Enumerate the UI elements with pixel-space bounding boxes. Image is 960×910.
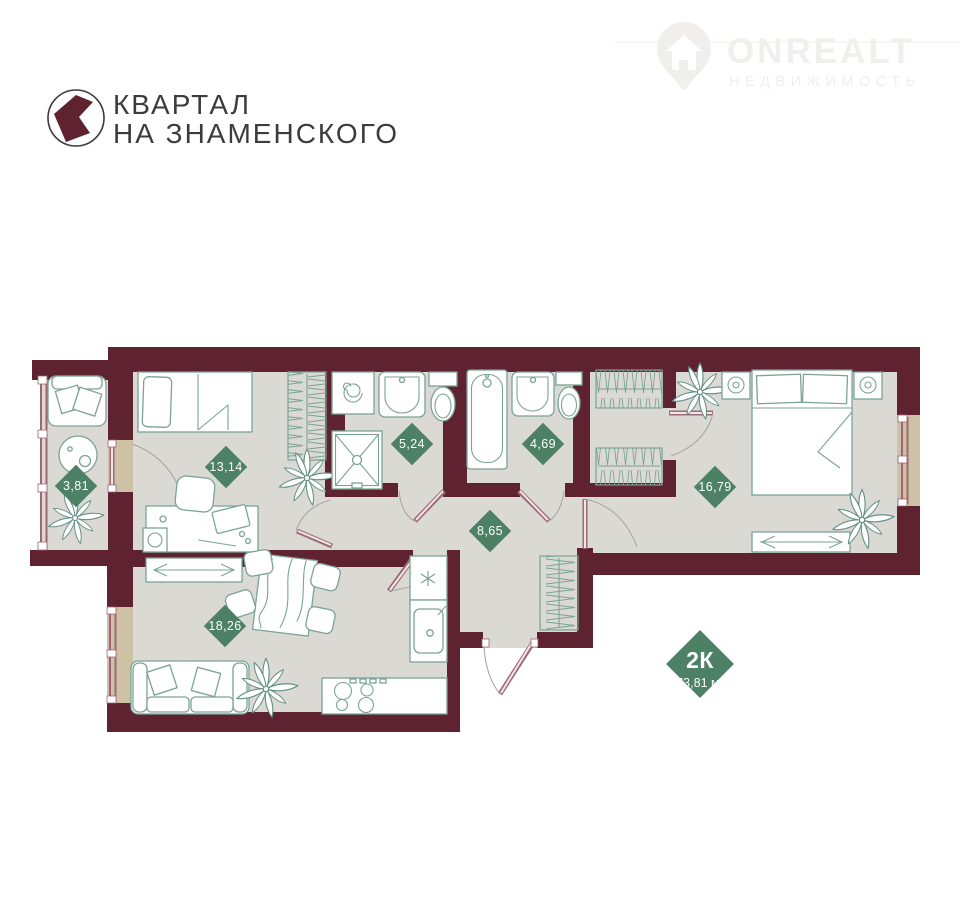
onrealt-pin-icon: [657, 22, 711, 90]
bathroom1-area: 5,24: [399, 437, 425, 451]
bedroom1-area: 13,14: [209, 460, 242, 474]
fridge: [410, 556, 447, 600]
hallway-area: 8,65: [477, 524, 503, 538]
bedroom1-wardrobe: [288, 372, 326, 460]
apartment-type: 2К: [686, 647, 714, 673]
brand-line1: КВАРТАЛ: [113, 89, 251, 120]
bedroom2-nightstand-right: [854, 372, 882, 399]
kitchen-sink: [410, 600, 447, 662]
balcony-armchair: [48, 376, 106, 426]
bathroom2-area: 4,69: [530, 437, 556, 451]
tv-bench: [146, 558, 242, 582]
bedroom2-area: 16,79: [698, 480, 731, 494]
bathroom2-sink: [512, 372, 554, 416]
bathroom1-sink: [379, 372, 425, 417]
living-kitchen-area: 18,26: [208, 619, 241, 633]
apartment-badge: 2К 73,81 м²: [666, 630, 734, 698]
bedroom2-bench: [752, 532, 850, 552]
watermark-title: ONREALT: [727, 32, 915, 71]
bathroom1-toilet: [429, 372, 457, 421]
brand-line2: НА ЗНАМЕНСКОГО: [113, 118, 399, 149]
niche-closet-bottom: [596, 448, 662, 485]
floor-plan-canvas: ONREALT НЕДВИЖИМОСТЬ КВАРТАЛ НА ЗНАМЕНСК…: [0, 0, 960, 910]
shower: [332, 431, 382, 489]
bedroom2-nightstand-left: [722, 372, 750, 399]
apartment-area: 73,81 м²: [676, 676, 724, 690]
bathroom2-toilet: [556, 372, 582, 419]
bedroom1-bed: [138, 372, 252, 432]
watermark-subtitle: НЕДВИЖИМОСТЬ: [729, 74, 921, 90]
balcony-area: 3,81: [63, 479, 89, 493]
stove-counter: [322, 678, 447, 714]
watermark: ONREALT НЕДВИЖИМОСТЬ: [615, 22, 960, 90]
brand-logo: КВАРТАЛ НА ЗНАМЕНСКОГО: [48, 89, 399, 149]
niche-closet-top: [596, 370, 662, 408]
bathtub: [467, 370, 507, 469]
floor-plan-page: ONREALT НЕДВИЖИМОСТЬ КВАРТАЛ НА ЗНАМЕНСК…: [0, 0, 960, 910]
bedroom2-bed: [752, 370, 852, 495]
washing-machine: [332, 372, 374, 414]
sofa: [131, 661, 249, 714]
hall-coat-closet: [540, 556, 578, 630]
